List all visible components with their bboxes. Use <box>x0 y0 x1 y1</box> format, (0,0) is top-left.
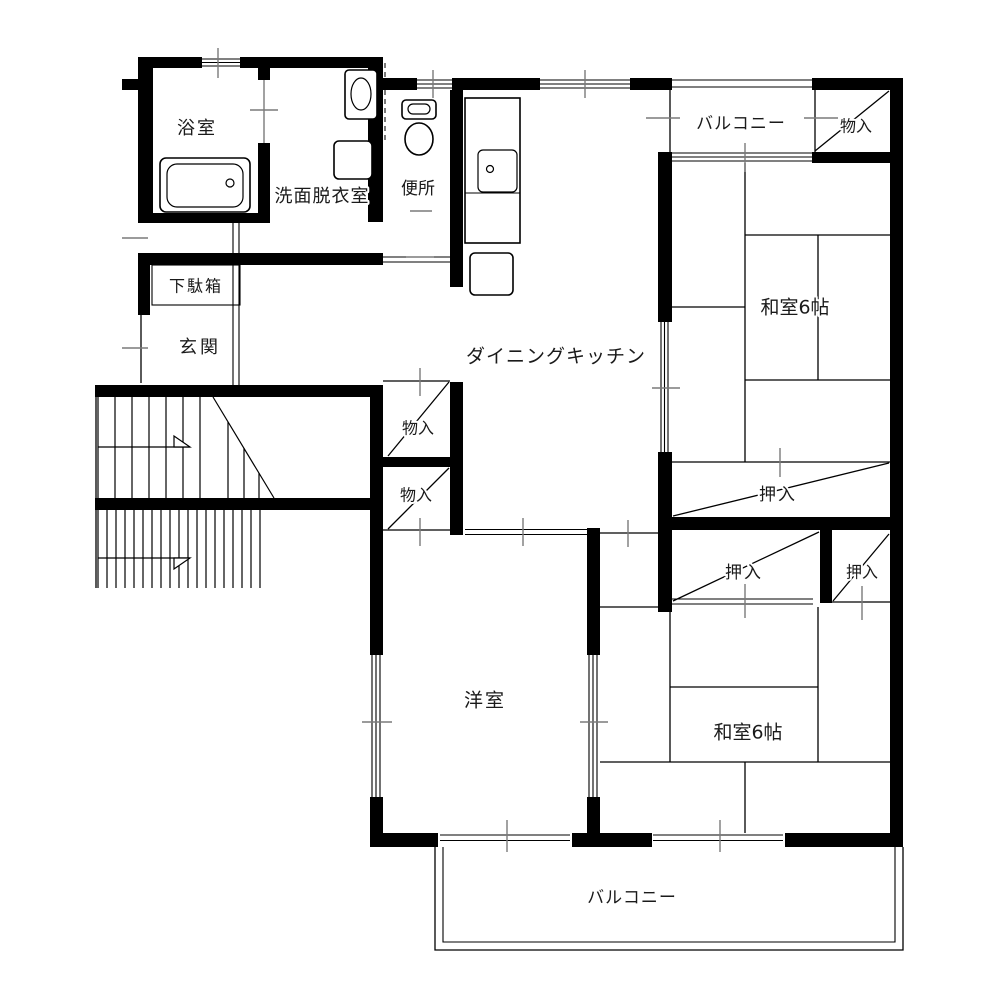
label-washroom: 洗面脱衣室 <box>275 186 370 207</box>
label-shoe-cabinet: 下駄箱 <box>169 277 223 296</box>
label-storage-top-right: 物入 <box>840 117 872 136</box>
wash-basin-icon <box>334 141 372 179</box>
slider-western-jroom <box>589 655 597 797</box>
floor-plan-svg: 浴室 洗面脱衣室 便所 下駄箱 玄関 ダイニングキッチン バルコニー 物入 和室… <box>0 0 1000 1000</box>
slider-dk-jroom <box>661 322 668 452</box>
label-closet-lower-left: 押入 <box>725 563 763 583</box>
room-labels: 浴室 洗面脱衣室 便所 下駄箱 玄関 ダイニングキッチン バルコニー 物入 和室… <box>169 114 878 908</box>
label-bathroom: 浴室 <box>177 118 217 139</box>
label-storage-mid-lower: 物入 <box>400 486 432 505</box>
label-balcony-top: バルコニー <box>696 114 786 134</box>
wall-stair-top <box>95 385 383 397</box>
label-japanese-room-lower: 和室6帖 <box>713 722 782 744</box>
window-western-left <box>372 655 380 797</box>
wall-kitchen <box>450 90 463 287</box>
stove-icon <box>470 253 513 295</box>
slider-western-top <box>465 530 587 535</box>
wall-right-outer <box>890 78 903 847</box>
bathtub-icon <box>160 158 250 212</box>
label-storage-mid-upper: 物入 <box>402 419 434 438</box>
stair-flight-lower <box>98 510 260 588</box>
slider-jroom-balcony <box>653 835 783 841</box>
label-japanese-room-upper: 和室6帖 <box>760 297 829 319</box>
floor-plan: 浴室 洗面脱衣室 便所 下駄箱 玄関 ダイニングキッチン バルコニー 物入 和室… <box>0 0 1000 1000</box>
label-entrance: 玄関 <box>179 337 221 358</box>
wall-closet-band <box>658 517 890 530</box>
kitchen-sink-icon <box>465 98 520 243</box>
label-balcony-bottom: バルコニー <box>587 888 677 908</box>
balcony-top-railing <box>670 80 812 87</box>
toilet-icon <box>402 100 436 155</box>
staircase <box>96 397 274 588</box>
slider-western-balcony <box>440 835 570 841</box>
wall-stair-mid <box>95 498 370 510</box>
washing-machine-icon <box>345 70 377 119</box>
label-closet-lower-right: 押入 <box>846 563 878 582</box>
window-bathroom-top <box>202 59 240 66</box>
tatami-lines-lower <box>600 607 890 833</box>
label-dining-kitchen: ダイニングキッチン <box>466 346 646 368</box>
stair-arrow-up <box>174 436 190 447</box>
slider-closet-lower <box>672 599 813 604</box>
window-jroom-balcony <box>670 153 812 161</box>
stair-flight-upper <box>98 397 274 498</box>
label-western-room: 洋室 <box>464 690 506 712</box>
label-toilet: 便所 <box>401 179 435 199</box>
wall-left-stub <box>122 79 138 90</box>
label-closet-upper: 押入 <box>759 485 797 505</box>
window-toilet-top <box>417 80 452 88</box>
